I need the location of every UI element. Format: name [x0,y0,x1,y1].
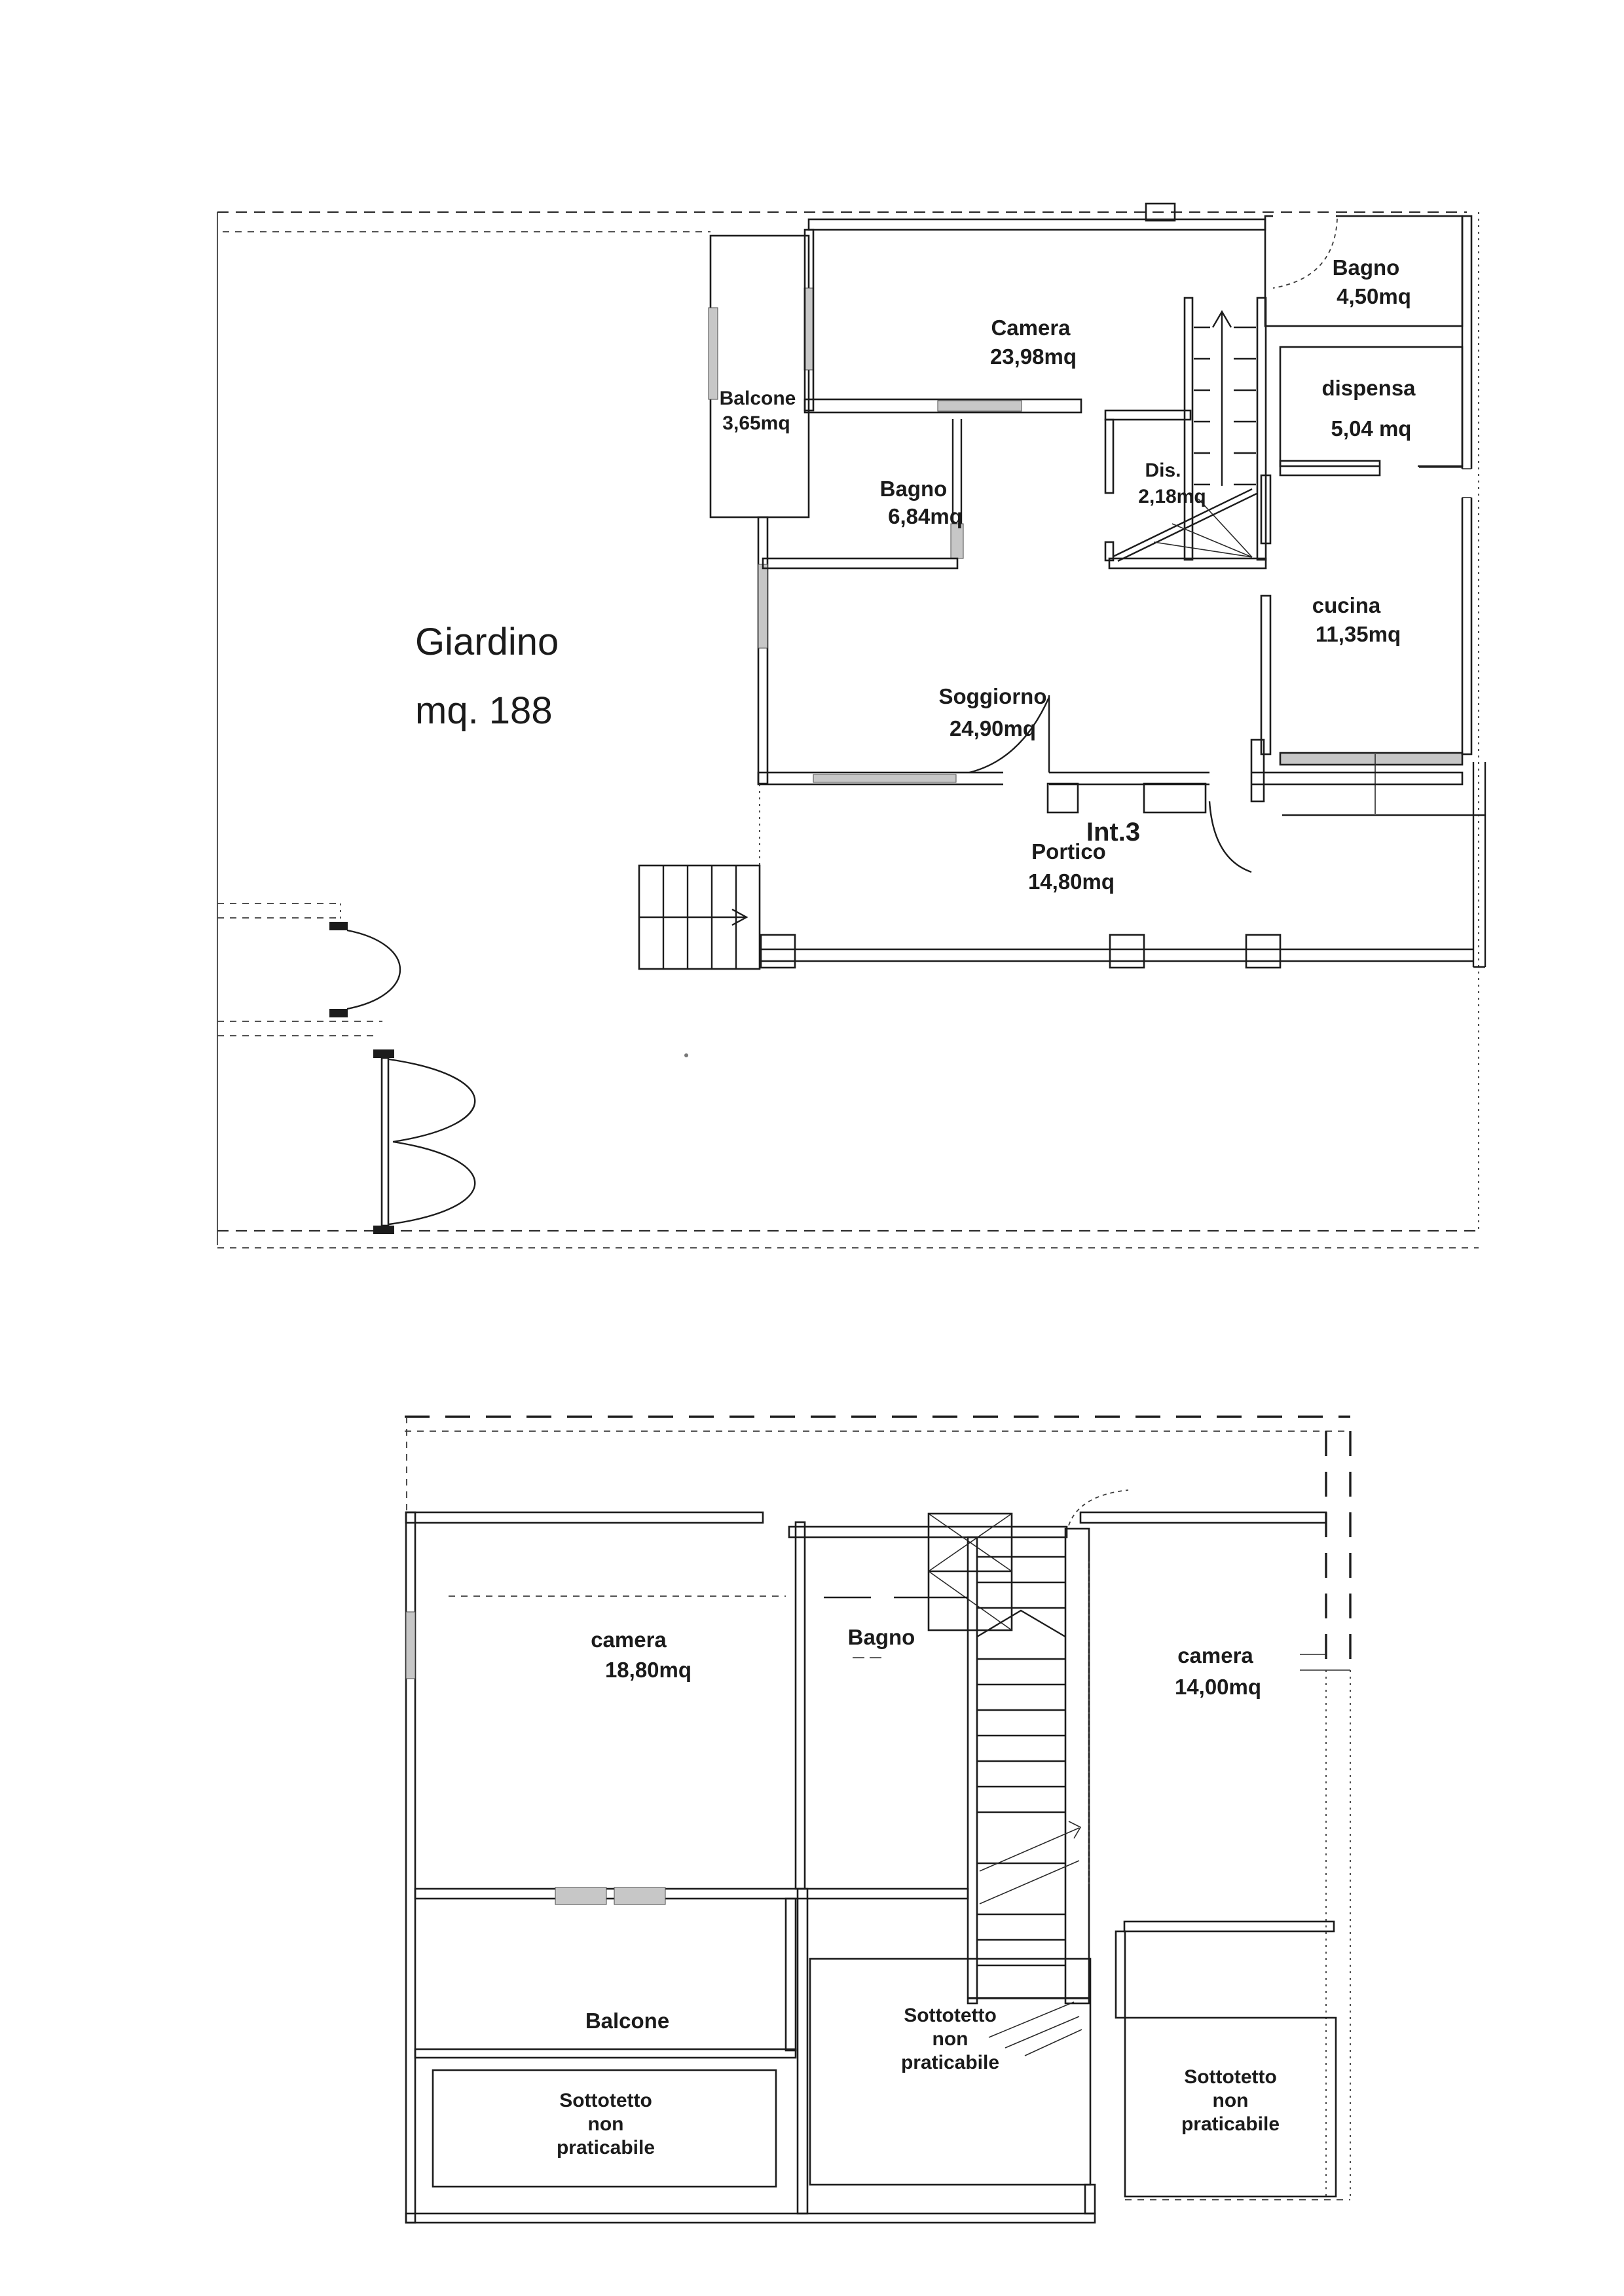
room-label-bagno-lower: Bagno [848,1625,915,1649]
room-area-cucina: 11,35mq [1316,622,1401,646]
sottotetto-line1: Sottotetto [904,2005,997,2026]
wall-south [406,2214,1095,2223]
gate-arc [389,1059,475,1142]
garden-area: mq. 188 [415,689,553,732]
room-dis: Dis. 2,18mq [1105,410,1206,560]
understair-line [1025,2030,1082,2056]
plan-upper: Giardino mq. 188 Balcone 3,65mq Camera 2… [217,204,1485,1248]
room-area-dis: 2,18mq [1138,486,1206,507]
garden-gate-single [217,903,400,1017]
staircase-lower-plan [968,1529,1089,2056]
sottotetto-line2: non [932,2028,969,2050]
floor-plan-drawing: Giardino mq. 188 Balcone 3,65mq Camera 2… [0,0,1624,2296]
garden-steps [639,866,760,969]
flue-box [929,1514,1012,1630]
room-label-portico: Portico [1031,839,1106,864]
floor-plan-page: Giardino mq. 188 Balcone 3,65mq Camera 2… [0,0,1624,2296]
scan-speck [684,1053,688,1057]
glazing-hatch [813,774,956,782]
room-area-balcone: 3,65mq [722,412,790,434]
garden-boundary [217,212,1479,1248]
room-camera-piccola: camera 14,00mq [1124,1643,1334,1931]
staircase-upper-plan [1109,298,1266,568]
stair-treads [977,1557,1065,1965]
room-label-balcone: Balcone [720,388,796,409]
room-balcone-upper: Balcone 3,65mq [709,236,813,517]
gate-arc [389,1142,475,1224]
room-label-soggiorno: Soggiorno [939,684,1047,708]
room-label-dis: Dis. [1145,460,1181,481]
window-hatch [709,308,718,399]
door-arc [1273,219,1337,288]
sottotetto-line1: Sottotetto [1184,2066,1277,2088]
wall-north-right [1080,1512,1326,1523]
sottotetto-line3: praticabile [1181,2113,1280,2135]
wall-left-lower [758,517,767,784]
door-arc [1069,1490,1128,1525]
wall-north-left [406,1512,763,1523]
understair-line [1005,2016,1079,2048]
room-soggiorno: Soggiorno 24,90mq [763,558,1046,740]
room-bagno-sup: Bagno 4,50mq [1265,213,1462,326]
room-label-dispensa: dispensa [1321,376,1416,400]
room-area-dispensa: 5,04 mq [1331,416,1412,441]
room-area-portico: 14,80mq [1028,869,1115,894]
room-area-bagno-sup: 4,50mq [1337,284,1411,308]
understair-line [989,2002,1074,2037]
room-label-camera-piccola: camera [1177,1643,1253,1667]
window-hatch [758,564,767,648]
room-cucina: cucina 11,35mq [1261,475,1485,815]
room-sottotetto-right: Sottotetto non praticabile [1116,1931,1336,2196]
room-balcone-lower: Balcone [415,1899,796,2058]
wall-mid-band [415,1887,968,1904]
sottotetto-line3: praticabile [901,2052,999,2073]
pillar [1110,935,1144,968]
wall-camera-bagno [796,1522,805,1889]
room-label-camera-grande: camera [591,1628,667,1652]
sottotetto-line3: praticabile [557,2137,655,2159]
wall-center-vertical [798,1889,807,2214]
room-bagno-inf: Bagno 6,84mq [880,419,963,558]
room-sottotetto-center: Sottotetto non praticabile [810,1959,1090,2185]
sottotetto-line1: Sottotetto [559,2090,652,2111]
room-label-bagno-inf: Bagno [880,477,948,501]
room-camera-upper: Camera 23,98mq [805,204,1265,412]
wall-right-outer [1461,216,1485,967]
room-label-bagno-sup: Bagno [1333,255,1400,280]
room-dispensa: dispensa 5,04 mq [1280,347,1462,475]
room-area-camera-piccola: 14,00mq [1175,1675,1261,1699]
wall-south-return [1085,2185,1095,2214]
room-area-camera: 23,98mq [990,344,1077,369]
pillar [1246,935,1280,968]
room-area-bagno-inf: 6,84mq [888,504,963,528]
room-camera-grande: camera 18,80mq [449,1596,786,1682]
room-label-balcone-lower: Balcone [585,2009,669,2033]
room-area-soggiorno: 24,90mq [950,716,1036,740]
room-sottotetto-left: Sottotetto non praticabile [433,2070,776,2187]
garden-gate-double [217,1021,475,1234]
room-portico: Portico 14,80mq [760,784,1473,968]
room-area-camera-grande: 18,80mq [605,1658,692,1682]
pillar [761,935,795,968]
gate-arc [347,930,400,1009]
sottotetto-line2: non [588,2113,624,2135]
door-arc [1209,801,1251,872]
garden-name: Giardino [415,621,559,663]
sottotetto-line2: non [1213,2090,1249,2111]
room-label-cucina: cucina [1312,593,1381,617]
room-label-camera: Camera [991,316,1071,340]
room-bagno-lower: Bagno [824,1597,968,1658]
stair-treads [1194,327,1256,484]
plan-lower: camera 18,80mq Bagno [405,1417,1350,2223]
window-hatch [938,401,1022,411]
window-hatch [406,1612,415,1679]
